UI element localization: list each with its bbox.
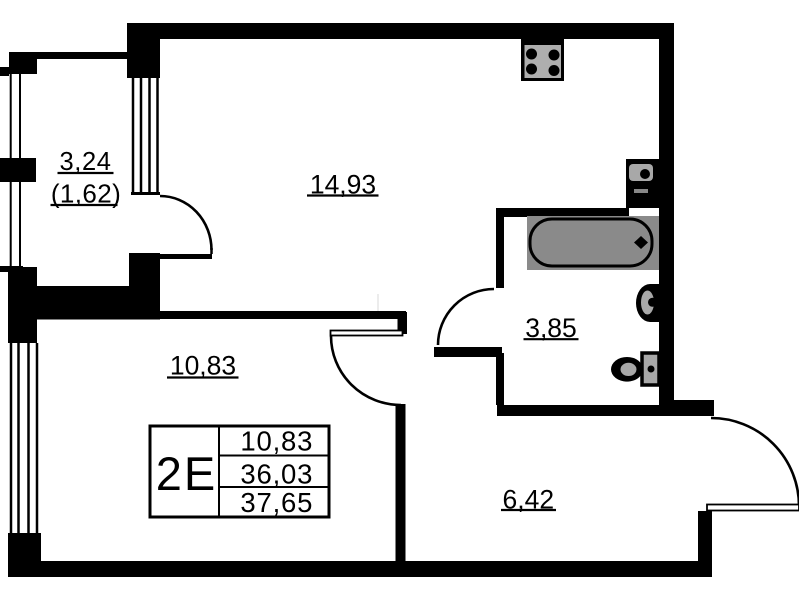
svg-text:3,24: 3,24 — [59, 148, 111, 176]
svg-text:2E: 2E — [156, 447, 218, 500]
svg-text:36,03: 36,03 — [240, 459, 313, 490]
svg-text:10,83: 10,83 — [240, 426, 313, 457]
svg-text:10,83: 10,83 — [170, 351, 236, 381]
svg-text:37,65: 37,65 — [240, 487, 313, 518]
